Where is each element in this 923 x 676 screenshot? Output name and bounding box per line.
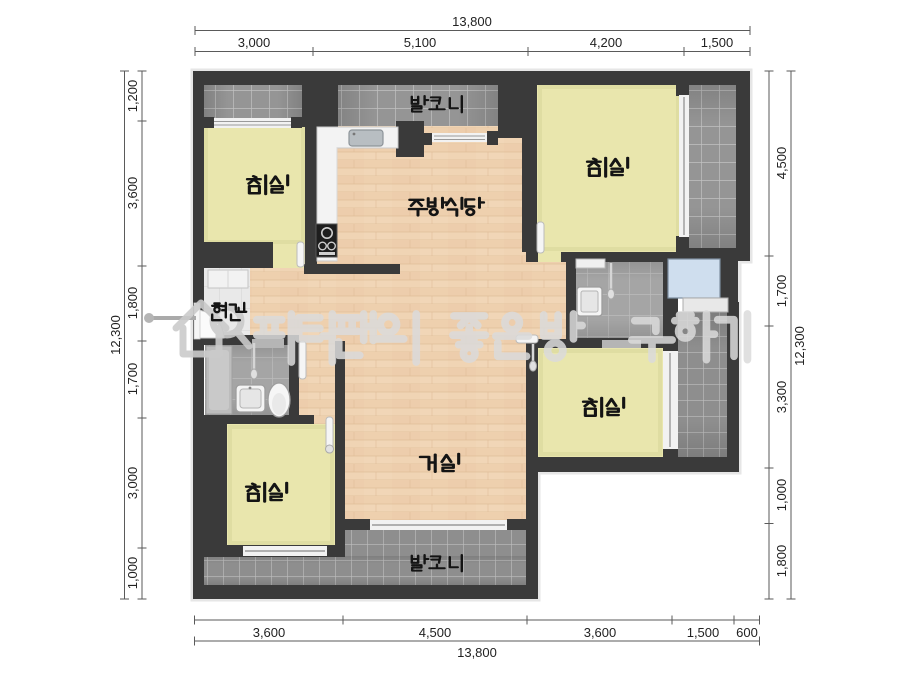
svg-text:3,000: 3,000 (125, 467, 140, 500)
svg-text:4,200: 4,200 (590, 35, 623, 50)
svg-text:1,500: 1,500 (701, 35, 734, 50)
svg-text:1,700: 1,700 (774, 275, 789, 308)
svg-text:13,800: 13,800 (452, 14, 492, 29)
svg-text:1,200: 1,200 (125, 80, 140, 113)
svg-text:1,000: 1,000 (125, 557, 140, 590)
svg-text:4,500: 4,500 (774, 147, 789, 180)
svg-text:1,500: 1,500 (687, 625, 720, 640)
svg-text:1,000: 1,000 (774, 479, 789, 512)
svg-text:13,800: 13,800 (457, 645, 497, 660)
svg-text:3,300: 3,300 (774, 381, 789, 414)
svg-text:3,600: 3,600 (125, 177, 140, 210)
svg-text:1,800: 1,800 (125, 287, 140, 320)
svg-text:5,100: 5,100 (404, 35, 437, 50)
svg-text:4,500: 4,500 (419, 625, 452, 640)
svg-text:3,600: 3,600 (253, 625, 286, 640)
svg-text:12,300: 12,300 (792, 326, 807, 366)
svg-text:12,300: 12,300 (108, 315, 123, 355)
svg-text:600: 600 (736, 625, 758, 640)
svg-text:1,800: 1,800 (774, 545, 789, 578)
svg-text:3,000: 3,000 (238, 35, 271, 50)
svg-text:3,600: 3,600 (584, 625, 617, 640)
svg-text:1,700: 1,700 (125, 363, 140, 396)
